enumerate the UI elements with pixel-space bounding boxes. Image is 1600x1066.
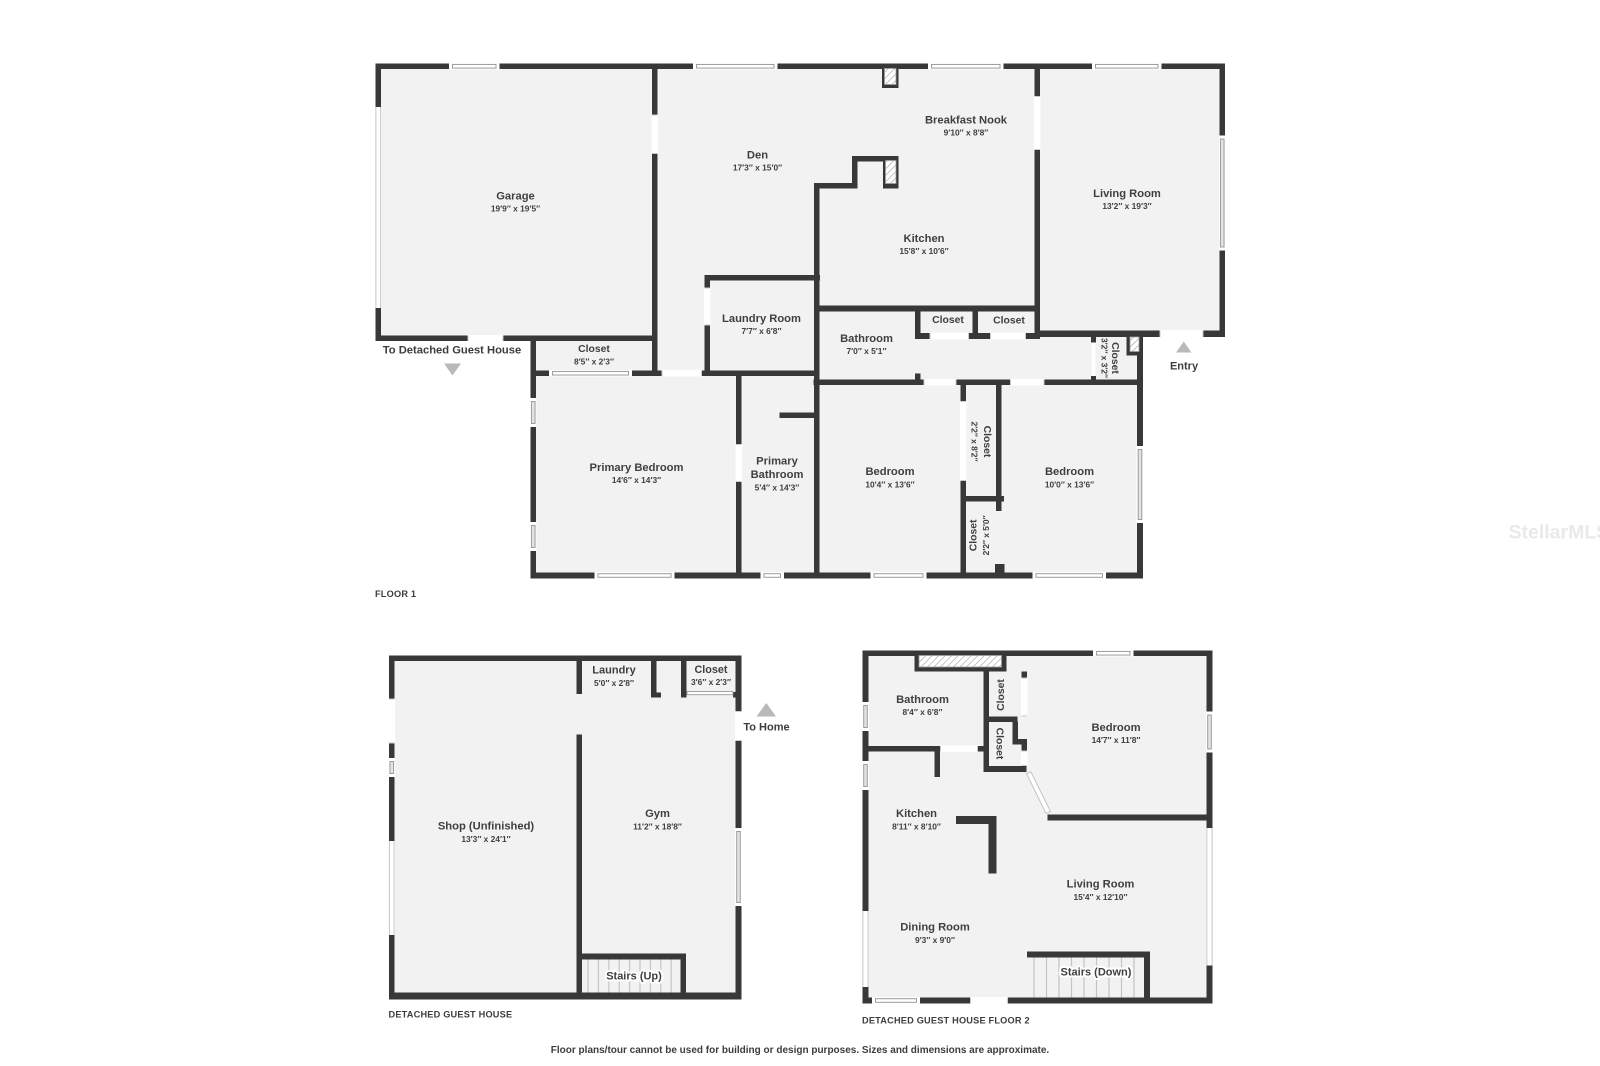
svg-text:5′0″ x 2′8″: 5′0″ x 2′8″ — [594, 678, 634, 688]
svg-text:Closet: Closet — [993, 316, 1025, 327]
svg-text:Den: Den — [747, 150, 768, 162]
svg-text:Shop (Unfinished): Shop (Unfinished) — [438, 821, 535, 833]
svg-text:Garage: Garage — [496, 191, 535, 203]
svg-text:15′4″ x 12′10″: 15′4″ x 12′10″ — [1074, 892, 1128, 902]
svg-text:Closet: Closet — [969, 519, 980, 551]
svg-text:5′4″ x 14′3″: 5′4″ x 14′3″ — [755, 483, 800, 493]
svg-text:Primary Bedroom: Primary Bedroom — [590, 462, 684, 474]
svg-text:9′10″ x 8′8″: 9′10″ x 8′8″ — [944, 128, 989, 138]
svg-text:3′6″ x 2′3″: 3′6″ x 2′3″ — [691, 677, 731, 687]
svg-text:19′9″ x 19′5″: 19′9″ x 19′5″ — [491, 204, 540, 214]
svg-text:3′2″ x 3′2″: 3′2″ x 3′2″ — [1100, 338, 1110, 378]
svg-text:8′11″ x 8′10″: 8′11″ x 8′10″ — [892, 822, 941, 832]
svg-text:Closet: Closet — [996, 679, 1007, 711]
svg-text:Kitchen: Kitchen — [903, 233, 944, 245]
svg-text:Floor plans/tour cannot be use: Floor plans/tour cannot be used for buil… — [551, 1045, 1050, 1056]
svg-text:17′3″ x 15′0″: 17′3″ x 15′0″ — [733, 163, 782, 173]
svg-text:Bedroom: Bedroom — [865, 466, 914, 478]
svg-text:15′8″ x 10′6″: 15′8″ x 10′6″ — [899, 246, 948, 256]
svg-text:13′2″ x 19′3″: 13′2″ x 19′3″ — [1102, 201, 1151, 211]
svg-text:10′4″ x 13′6″: 10′4″ x 13′6″ — [865, 479, 914, 489]
svg-text:Bedroom: Bedroom — [1091, 722, 1140, 734]
svg-text:Dining Room: Dining Room — [900, 922, 970, 934]
svg-text:14′6″ x 14′3″: 14′6″ x 14′3″ — [612, 475, 661, 485]
svg-text:Closet: Closet — [932, 315, 964, 326]
svg-text:Closet: Closet — [1109, 342, 1120, 374]
svg-text:Bathroom: Bathroom — [840, 333, 893, 345]
svg-text:Laundry: Laundry — [592, 665, 636, 677]
svg-text:Bedroom: Bedroom — [1045, 466, 1094, 478]
svg-text:10′0″ x 13′6″: 10′0″ x 13′6″ — [1045, 479, 1094, 489]
svg-text:FLOOR 1: FLOOR 1 — [375, 589, 416, 599]
svg-text:Laundry Room: Laundry Room — [722, 313, 801, 325]
svg-text:7′7″ x 6′8″: 7′7″ x 6′8″ — [742, 326, 782, 336]
svg-text:14′7″ x 11′8″: 14′7″ x 11′8″ — [1092, 735, 1141, 745]
svg-text:7′0″ x 5′1″: 7′0″ x 5′1″ — [847, 346, 887, 356]
svg-text:2′2″ x 5′0″: 2′2″ x 5′0″ — [981, 515, 991, 555]
svg-text:Primary: Primary — [756, 456, 798, 468]
svg-text:Bathroom: Bathroom — [751, 469, 804, 481]
svg-text:Gym: Gym — [645, 808, 670, 820]
svg-text:Closet: Closet — [695, 664, 728, 676]
svg-text:13′3″ x 24′1″: 13′3″ x 24′1″ — [461, 834, 510, 844]
svg-text:To Detached Guest House: To Detached Guest House — [383, 345, 521, 357]
svg-text:Closet: Closet — [994, 728, 1005, 760]
svg-text:Living Room: Living Room — [1067, 879, 1135, 891]
svg-text:Bathroom: Bathroom — [896, 694, 949, 706]
svg-text:2′2″ x 8′2″: 2′2″ x 8′2″ — [970, 422, 980, 462]
svg-text:DETACHED GUEST HOUSE FLOOR 2: DETACHED GUEST HOUSE FLOOR 2 — [862, 1015, 1030, 1025]
svg-text:DETACHED GUEST HOUSE: DETACHED GUEST HOUSE — [389, 1010, 513, 1020]
svg-text:Kitchen: Kitchen — [896, 808, 937, 820]
svg-text:Closet: Closet — [981, 426, 992, 458]
svg-text:Closet: Closet — [578, 344, 610, 355]
svg-text:9′3″ x 9′0″: 9′3″ x 9′0″ — [915, 935, 955, 945]
svg-text:To Home: To Home — [743, 722, 789, 734]
svg-text:Breakfast Nook: Breakfast Nook — [925, 115, 1008, 127]
svg-text:11′2″ x 18′8″: 11′2″ x 18′8″ — [633, 821, 682, 831]
svg-text:Living Room: Living Room — [1093, 188, 1161, 200]
svg-text:8′4″ x 6′8″: 8′4″ x 6′8″ — [903, 707, 943, 717]
svg-text:StellarMLS: StellarMLS — [1509, 521, 1600, 543]
svg-text:Stairs (Down): Stairs (Down) — [1061, 967, 1132, 979]
svg-text:8′5″ x 2′3″: 8′5″ x 2′3″ — [574, 357, 614, 367]
svg-text:Entry: Entry — [1170, 360, 1199, 372]
svg-text:Stairs (Up): Stairs (Up) — [606, 971, 662, 983]
